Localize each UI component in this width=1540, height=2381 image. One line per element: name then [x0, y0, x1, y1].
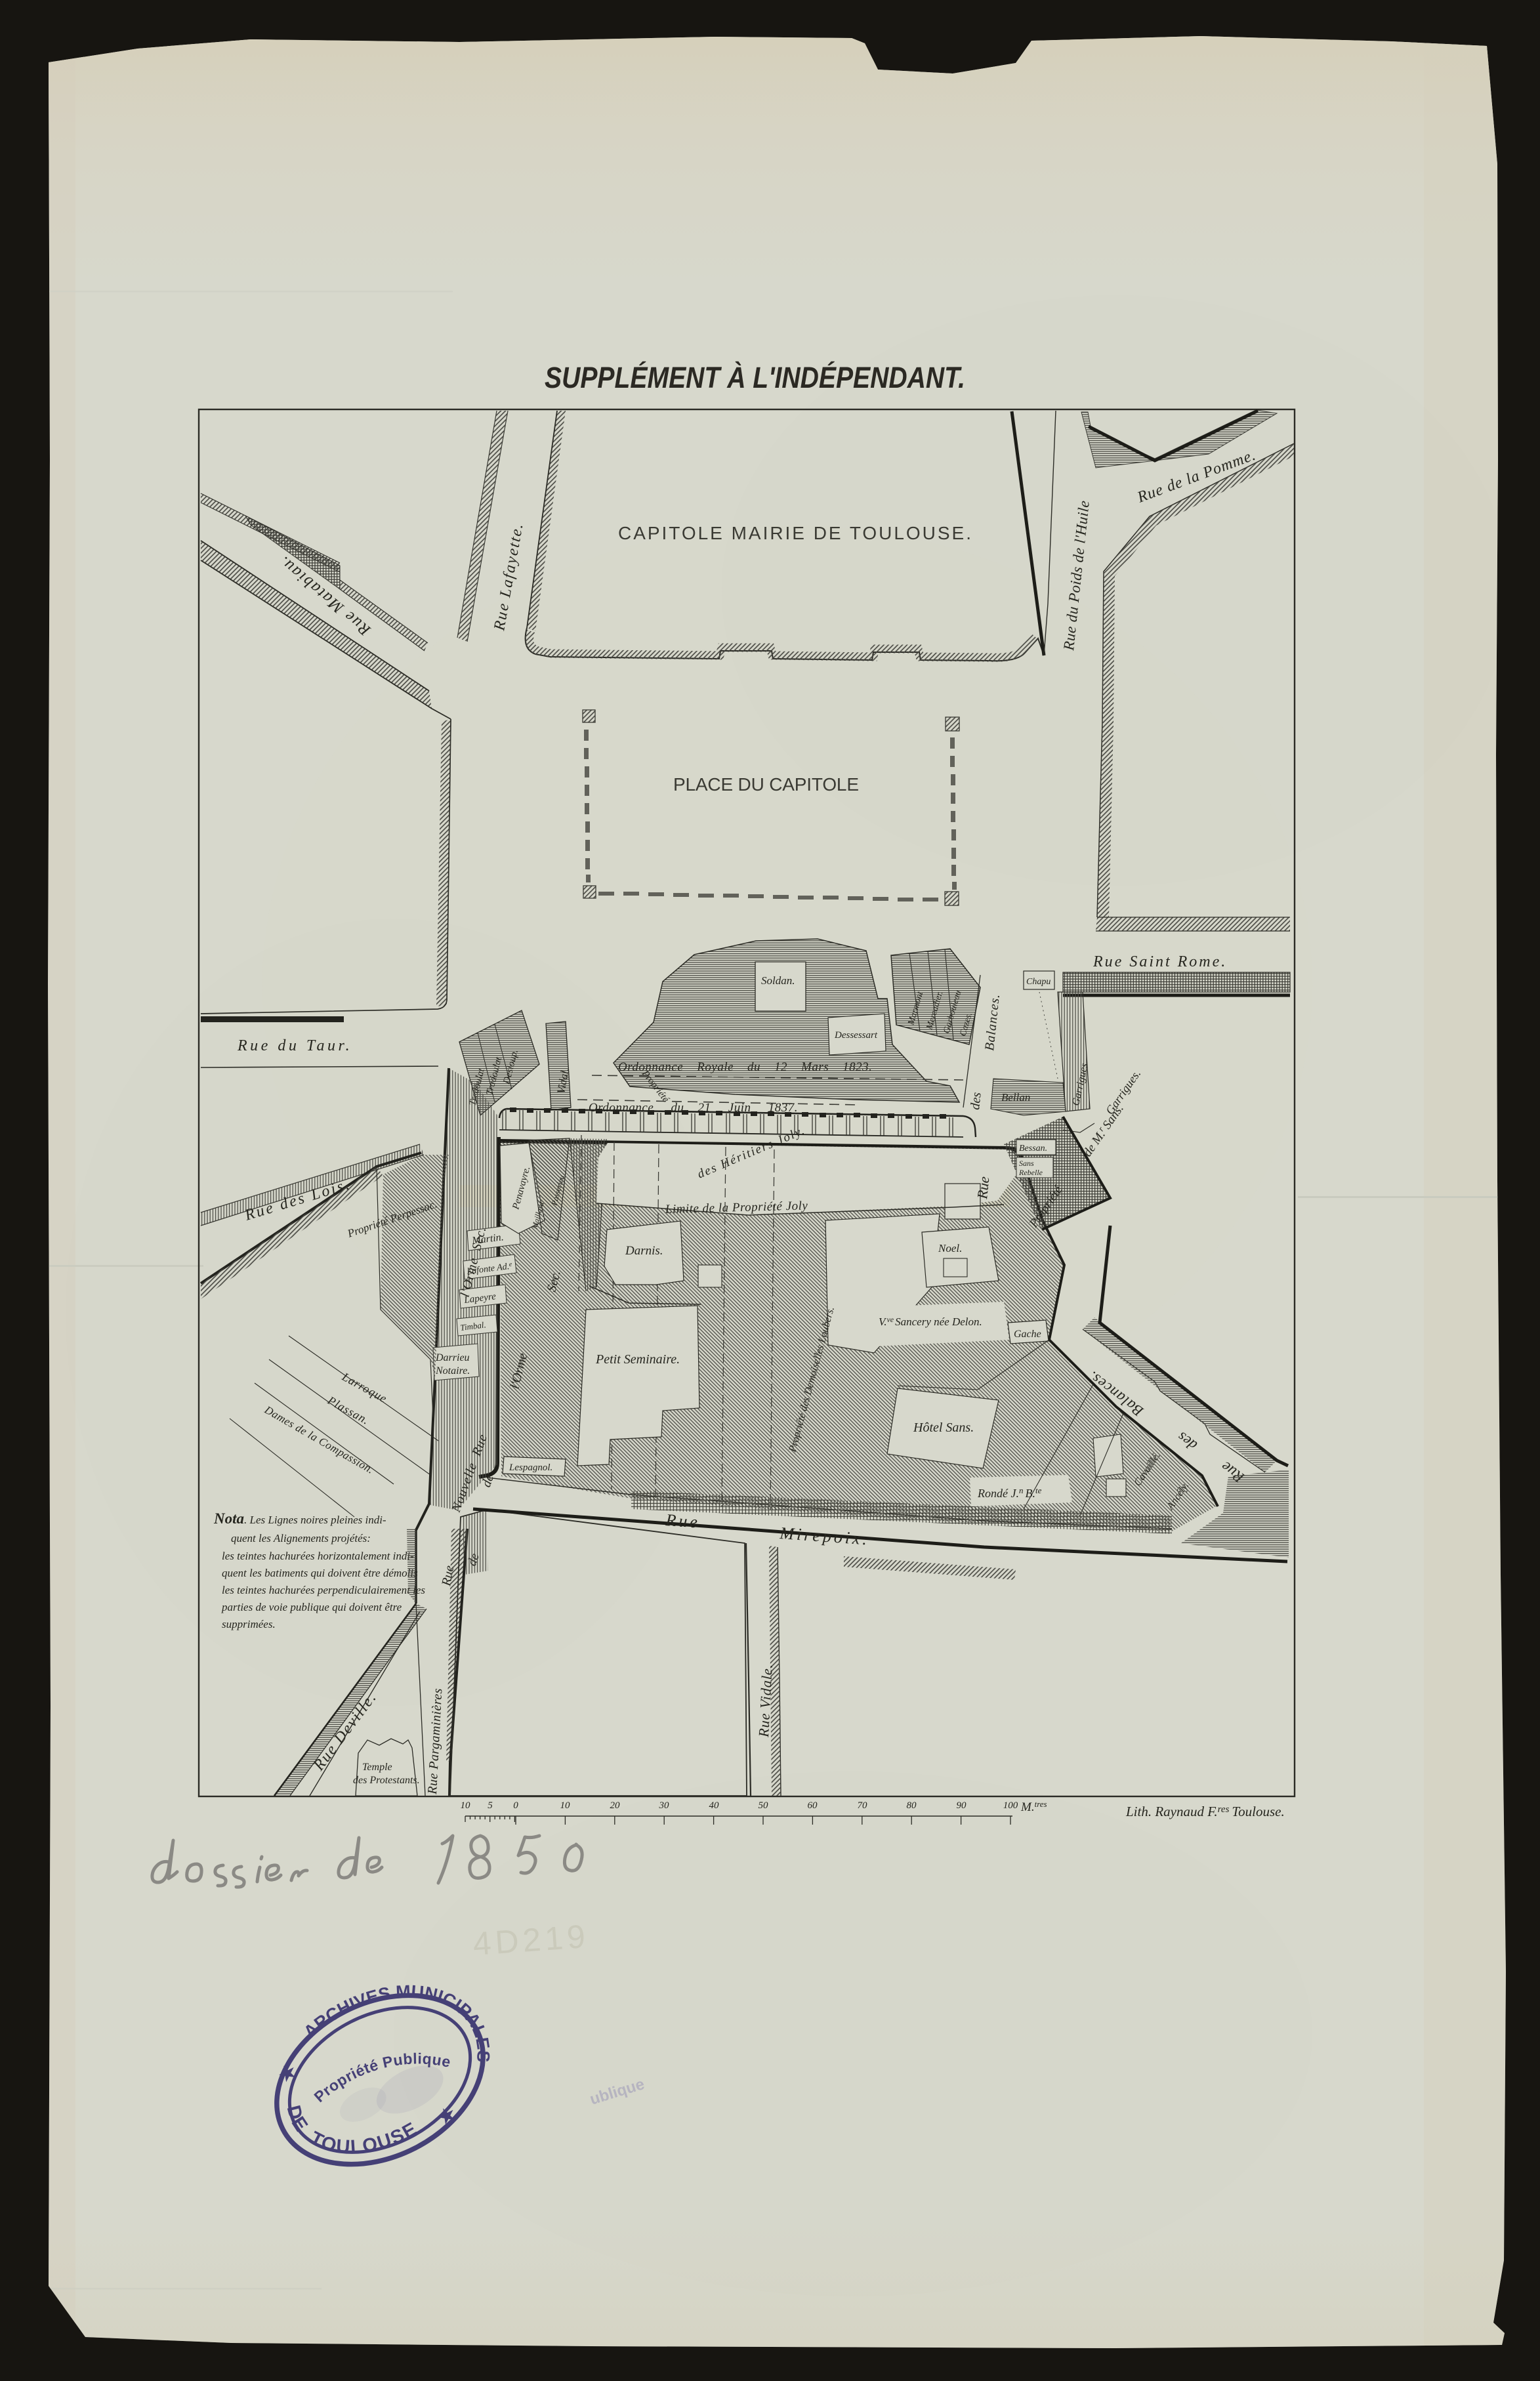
svg-text:les teintes hachurées horizont: les teintes hachurées horizontalement in… [222, 1550, 414, 1562]
svg-text:SUPPLÉMENT À L'INDÉPENDANT.: SUPPLÉMENT À L'INDÉPENDANT. [545, 361, 965, 394]
svg-text:CAPITOLE MAIRIE DE TOULOUSE.: CAPITOLE MAIRIE DE TOULOUSE. [618, 523, 971, 543]
svg-text:Dessessart: Dessessart [834, 1030, 878, 1041]
svg-text:PLACE DU CAPITOLE: PLACE DU CAPITOLE [673, 774, 859, 795]
svg-text:10: 10 [461, 1800, 471, 1811]
svg-text:parties de voie publique qui d: parties de voie publique qui doivent êtr… [221, 1601, 402, 1613]
svg-text:Notaire.: Notaire. [435, 1365, 470, 1377]
svg-text:30: 30 [659, 1800, 670, 1811]
svg-text:Ordonnance Royale du: Ordonnance Royale du 12 Mars 1823. [618, 1060, 872, 1074]
svg-text:Chapu: Chapu [1026, 977, 1051, 987]
svg-text:70: 70 [858, 1800, 868, 1811]
svg-text:quent les batiments qui doiven: quent les batiments qui doivent être dém… [222, 1567, 418, 1579]
svg-text:20: 20 [610, 1800, 621, 1811]
svg-text:90: 90 [957, 1800, 967, 1811]
svg-text:Noel.: Noel. [938, 1242, 962, 1254]
svg-text:60: 60 [808, 1800, 818, 1811]
svg-text:5: 5 [488, 1800, 493, 1811]
svg-text:Rebelle: Rebelle [1018, 1168, 1043, 1177]
svg-text:Bessan.: Bessan. [1019, 1144, 1047, 1153]
svg-text:Rondé J.nB.te: Rondé J.nB.te [977, 1485, 1042, 1500]
svg-text:100: 100 [1003, 1800, 1018, 1811]
svg-text:Darnis.: Darnis. [625, 1244, 663, 1258]
svg-text:80: 80 [907, 1800, 917, 1811]
svg-text:Lespagnol.: Lespagnol. [509, 1462, 552, 1473]
svg-text:supprimées.: supprimées. [222, 1618, 276, 1630]
svg-text:les teintes hachurées perpendi: les teintes hachurées perpendiculairemen… [222, 1584, 425, 1596]
svg-text:10: 10 [560, 1800, 571, 1811]
svg-text:Gache: Gache [1014, 1329, 1041, 1340]
svg-text:Hôtel Sans.: Hôtel Sans. [913, 1420, 974, 1435]
svg-text:Rue: Rue [665, 1510, 701, 1532]
svg-text:des Protestants.: des Protestants. [353, 1775, 420, 1786]
svg-text:Rue: Rue [974, 1176, 993, 1201]
svg-text:Petit Seminaire.: Petit Seminaire. [595, 1352, 680, 1367]
svg-text:40: 40 [709, 1800, 720, 1811]
svg-text:Sans: Sans [1019, 1159, 1034, 1168]
svg-text:Temple: Temple [362, 1762, 392, 1773]
svg-text:50: 50 [759, 1800, 769, 1811]
svg-text:Bellan: Bellan [1001, 1091, 1030, 1104]
svg-text:Rue Saint Rome.: Rue Saint Rome. [1093, 953, 1227, 970]
svg-text:Rue du Taur.: Rue du Taur. [237, 1037, 352, 1054]
svg-text:Darrieu: Darrieu [435, 1352, 470, 1363]
svg-text:quent les Alignements projétés: quent les Alignements projétés: [231, 1532, 371, 1544]
svg-text:Lith. Raynaud F.resToulouse.: Lith. Raynaud F.resToulouse. [1125, 1804, 1285, 1819]
svg-text:Soldan.: Soldan. [761, 974, 795, 987]
svg-text:des: des [968, 1091, 984, 1110]
svg-text:0: 0 [513, 1800, 518, 1811]
